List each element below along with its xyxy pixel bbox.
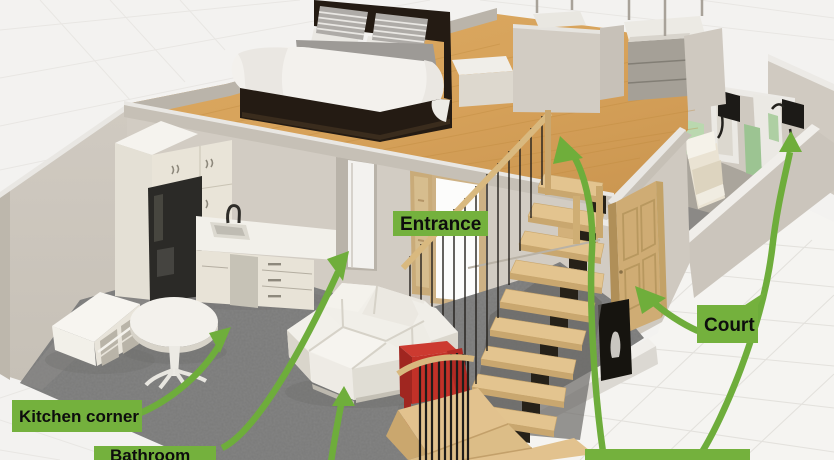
svg-text:Kitchen corner: Kitchen corner bbox=[19, 407, 139, 426]
svg-text:Court: Court bbox=[704, 315, 755, 336]
svg-text:Bathroom: Bathroom bbox=[110, 446, 190, 460]
svg-text:Entrance: Entrance bbox=[400, 214, 481, 235]
